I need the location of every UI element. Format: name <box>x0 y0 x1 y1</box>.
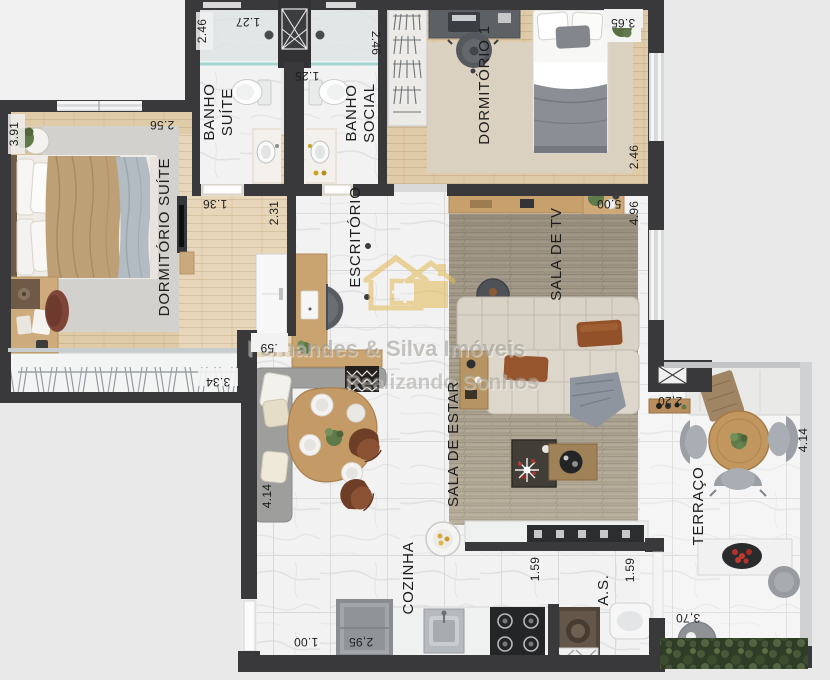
svg-text:ESCRITÓRIO: ESCRITÓRIO <box>347 186 364 287</box>
svg-text:2.46: 2.46 <box>369 31 383 56</box>
svg-text:1.25: 1.25 <box>295 69 320 83</box>
svg-text:COZINHA: COZINHA <box>400 541 417 614</box>
svg-text:2,20: 2,20 <box>658 394 683 408</box>
svg-text:SALA DE ESTAR: SALA DE ESTAR <box>445 381 462 507</box>
svg-text:1.00: 1.00 <box>294 635 319 649</box>
svg-text:A.S.: A.S. <box>595 574 612 606</box>
svg-text:BANHO: BANHO <box>201 83 218 140</box>
svg-text:1.27: 1.27 <box>236 15 261 29</box>
svg-text:SALA DE TV: SALA DE TV <box>548 207 565 301</box>
svg-text:SOCIAL: SOCIAL <box>361 83 378 143</box>
svg-text:1.36: 1.36 <box>203 197 228 211</box>
svg-text:TERRAÇO: TERRAÇO <box>690 467 707 546</box>
svg-text:2.46: 2.46 <box>195 19 209 44</box>
svg-text:3,70: 3,70 <box>676 611 701 625</box>
svg-text:BANHO: BANHO <box>343 84 360 141</box>
svg-text:3.34: 3.34 <box>206 375 231 389</box>
svg-text:2.31: 2.31 <box>267 201 281 226</box>
svg-text:4.14: 4.14 <box>796 428 810 453</box>
svg-text:2.56: 2.56 <box>150 118 175 132</box>
svg-text:.59: .59 <box>260 341 278 355</box>
svg-text:2,95: 2,95 <box>349 635 374 649</box>
svg-text:Realizando Sonhos: Realizando Sonhos <box>345 371 539 394</box>
svg-text:5.00: 5.00 <box>597 197 622 211</box>
svg-text:1.59: 1.59 <box>623 558 637 583</box>
svg-text:Fernandes & Silva Imóveis: Fernandes & Silva Imóveis <box>247 336 526 361</box>
svg-text:DORMITÓRIO 1: DORMITÓRIO 1 <box>476 25 493 145</box>
svg-text:2.46: 2.46 <box>627 145 641 170</box>
svg-text:3.65: 3.65 <box>611 16 636 30</box>
svg-text:4.96: 4.96 <box>627 201 641 226</box>
svg-text:1.59: 1.59 <box>528 557 542 582</box>
svg-text:3.91: 3.91 <box>7 122 21 147</box>
svg-text:4.14: 4.14 <box>260 484 274 509</box>
svg-text:SUÍTE: SUÍTE <box>219 88 236 136</box>
svg-text:DORMITÓRIO SUÍTE: DORMITÓRIO SUÍTE <box>156 158 173 317</box>
